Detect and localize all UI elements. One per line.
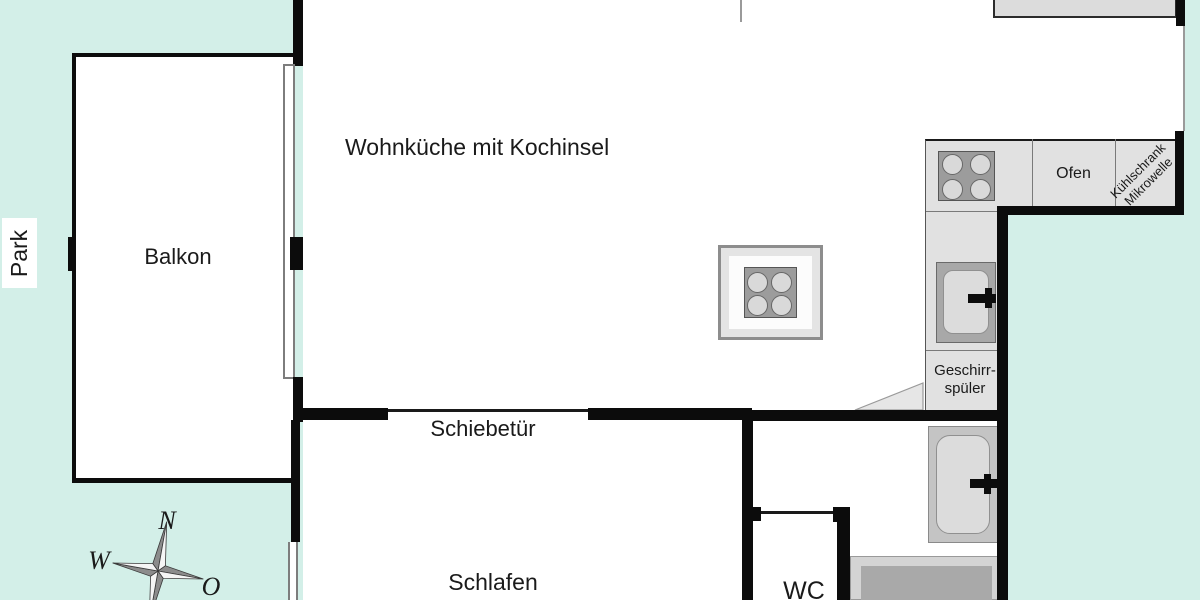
room-label-balcony: Balkon: [108, 244, 248, 270]
appliance-label-dishwasher: Geschirr- spüler: [925, 360, 1005, 400]
park-label-box: Park: [2, 218, 37, 288]
balcony-railing-post: [68, 237, 76, 271]
counter-divider: [926, 350, 997, 351]
room-label-living-kitchen: Wohnküche mit Kochinsel: [345, 134, 609, 161]
faucet-icon: [985, 288, 992, 308]
burner-icon: [942, 154, 963, 175]
wall: [752, 410, 1005, 421]
compass-north-label: N: [152, 506, 182, 536]
faucet-icon: [984, 474, 991, 494]
burner-icon: [970, 154, 991, 175]
room-main-floor: [303, 0, 1005, 600]
balcony-railing: [72, 478, 295, 483]
window-post: [290, 237, 303, 270]
cooktop-icon: [744, 267, 797, 318]
kitchen-window: [1177, 26, 1185, 131]
bedroom-window: [288, 542, 298, 600]
wall: [745, 507, 761, 521]
wall: [997, 206, 1008, 600]
wall: [1176, 0, 1185, 26]
door-swing-icon: [850, 378, 930, 414]
sliding-door-leaf: [388, 409, 589, 412]
wall: [588, 408, 752, 420]
balcony-railing: [72, 53, 295, 57]
wall: [293, 408, 388, 420]
compass-east-label: O: [196, 572, 226, 600]
door-frame-line: [740, 0, 742, 22]
shower-tray: [861, 566, 992, 600]
burner-icon: [747, 295, 768, 316]
burner-icon: [771, 272, 792, 293]
wc-door-leaf: [761, 511, 835, 514]
park-label: Park: [6, 229, 33, 276]
sliding-door-label: Schiebetür: [418, 416, 548, 442]
compass-west-label: W: [84, 546, 114, 576]
burner-icon: [970, 179, 991, 200]
burner-icon: [771, 295, 792, 316]
counter-divider: [926, 211, 997, 212]
cooktop-icon: [938, 151, 995, 201]
burner-icon: [942, 179, 963, 200]
balcony-window: [283, 64, 295, 379]
kitchen-upper-cabinet: [993, 0, 1177, 18]
floor-plan: Wohnküche mit Kochinsel Balkon Schiebetü…: [0, 0, 1200, 600]
room-label-wc: WC: [769, 576, 839, 600]
room-label-bedroom: Schlafen: [418, 568, 568, 596]
shower-icon: [850, 556, 1003, 600]
burner-icon: [747, 272, 768, 293]
